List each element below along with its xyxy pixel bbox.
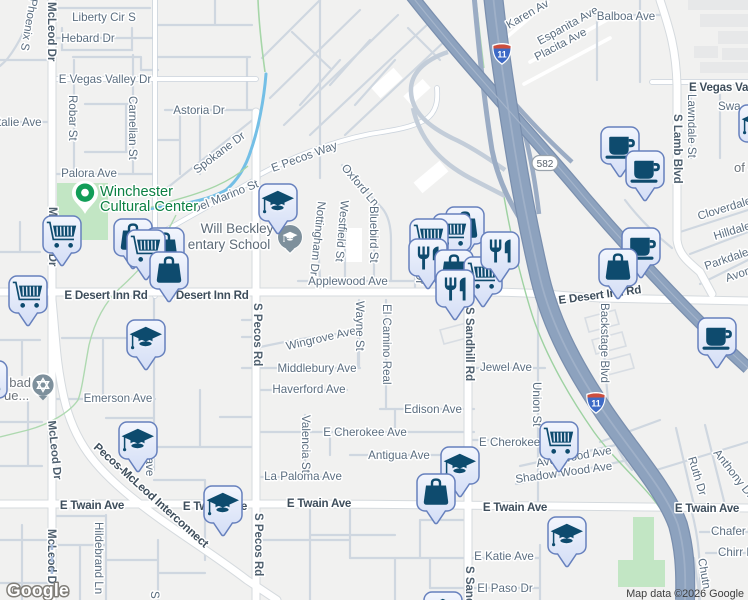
svg-text:11: 11 bbox=[497, 49, 506, 59]
svg-text:S Lamb Blvd: S Lamb Blvd bbox=[671, 114, 683, 184]
svg-text:Chirr L: Chirr L bbox=[718, 546, 748, 559]
svg-text:Liberty Cir S: Liberty Cir S bbox=[72, 11, 136, 24]
svg-text:El Camino Real: El Camino Real bbox=[380, 304, 393, 385]
svg-text:E Twain Ave: E Twain Ave bbox=[483, 501, 548, 514]
svg-text:Antigua Ave: Antigua Ave bbox=[368, 449, 430, 462]
svg-text:El Paso Dr: El Paso Dr bbox=[477, 582, 533, 595]
svg-text:Applewood Ave: Applewood Ave bbox=[308, 275, 388, 288]
svg-text:Swa: Swa bbox=[718, 100, 741, 113]
svg-text:McLeod Dr: McLeod Dr bbox=[45, 2, 57, 62]
svg-text:Astoria Dr: Astoria Dr bbox=[173, 104, 225, 117]
svg-text:Balboa Ave: Balboa Ave bbox=[597, 10, 655, 23]
svg-text:11: 11 bbox=[591, 398, 600, 408]
svg-text:entary School: entary School bbox=[188, 237, 271, 252]
svg-text:Carnelian St: Carnelian St bbox=[126, 96, 139, 161]
svg-text:Haverford Ave: Haverford Ave bbox=[272, 383, 345, 396]
svg-text:S Sand: S Sand bbox=[463, 566, 475, 600]
svg-text:Wayne St: Wayne St bbox=[353, 301, 366, 352]
svg-text:of Je: of Je bbox=[734, 160, 748, 175]
svg-text:Google: Google bbox=[7, 580, 69, 600]
svg-text:Union St: Union St bbox=[530, 382, 543, 427]
svg-text:E Vegas Va: E Vegas Va bbox=[689, 81, 748, 94]
svg-text:ue...: ue... bbox=[4, 388, 29, 403]
svg-text:talie Ave: talie Ave bbox=[0, 116, 42, 129]
svg-text:E Desert Inn Rd: E Desert Inn Rd bbox=[64, 289, 147, 302]
svg-text:E Twain Ave: E Twain Ave bbox=[675, 502, 740, 515]
svg-text:Backstage Blvd: Backstage Blvd bbox=[598, 303, 611, 383]
svg-text:E Cherokee Ave: E Cherokee Ave bbox=[323, 426, 407, 439]
svg-text:Robar St: Robar St bbox=[66, 95, 79, 142]
svg-text:Edison Ave: Edison Ave bbox=[404, 403, 462, 416]
svg-text:S Pecos Rd: S Pecos Rd bbox=[252, 513, 264, 576]
svg-text:E Twain Ave: E Twain Ave bbox=[287, 497, 352, 510]
svg-text:Map data ©2026 Google: Map data ©2026 Google bbox=[626, 588, 744, 600]
svg-text:Valencia St: Valencia St bbox=[299, 415, 312, 474]
svg-text:Emerson Ave: Emerson Ave bbox=[84, 392, 153, 405]
svg-text:Palora Ave: Palora Ave bbox=[61, 167, 117, 180]
svg-text:Will Beckley: Will Beckley bbox=[201, 221, 274, 236]
svg-text:Bluebird St: Bluebird St bbox=[367, 206, 380, 263]
svg-text:Winchester: Winchester bbox=[100, 184, 173, 200]
svg-text:E Vegas Valley Dr: E Vegas Valley Dr bbox=[59, 73, 152, 86]
svg-text:E Katie Ave: E Katie Ave bbox=[474, 550, 534, 563]
svg-text:Middlebury Ave: Middlebury Ave bbox=[277, 362, 356, 375]
svg-text:E Twain Ave: E Twain Ave bbox=[60, 499, 125, 512]
svg-text:Hebard Dr: Hebard Dr bbox=[61, 32, 115, 45]
svg-text:S Sandhill Rd: S Sandhill Rd bbox=[463, 307, 475, 381]
svg-text:Jewel Ave: Jewel Ave bbox=[480, 361, 532, 374]
svg-text:S Pecos Rd: S Pecos Rd bbox=[251, 303, 263, 366]
svg-text:582: 582 bbox=[537, 159, 554, 170]
svg-text:S M: S M bbox=[148, 591, 161, 600]
svg-text:Cultural Center: Cultural Center bbox=[100, 199, 198, 215]
svg-text:Chafer W: Chafer W bbox=[711, 525, 748, 538]
svg-text:Hildebrand Ln: Hildebrand Ln bbox=[92, 522, 105, 594]
svg-text:Lawndale St: Lawndale St bbox=[685, 94, 698, 159]
